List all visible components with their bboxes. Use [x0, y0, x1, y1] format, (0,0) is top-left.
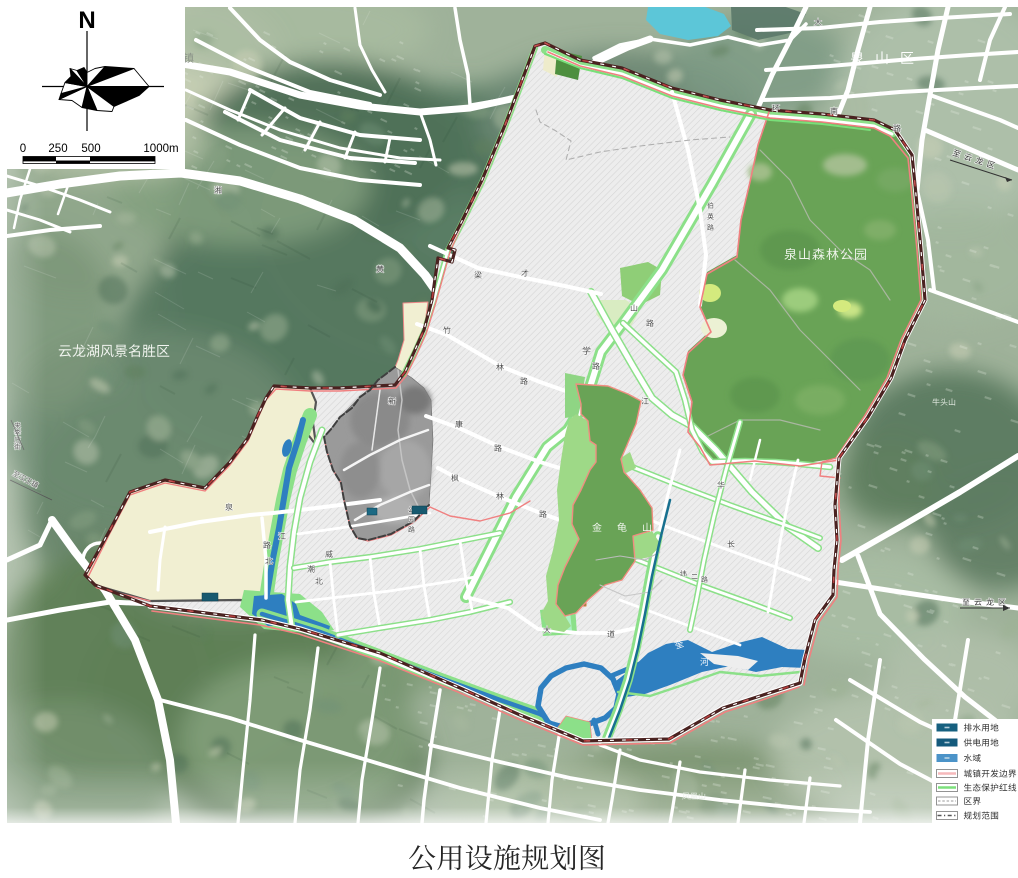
svg-text:N: N [78, 7, 95, 34]
svg-text:250: 250 [48, 143, 67, 155]
svg-text:0: 0 [20, 143, 26, 155]
svg-text:1000m: 1000m [143, 143, 178, 155]
svg-text:500: 500 [81, 143, 100, 155]
